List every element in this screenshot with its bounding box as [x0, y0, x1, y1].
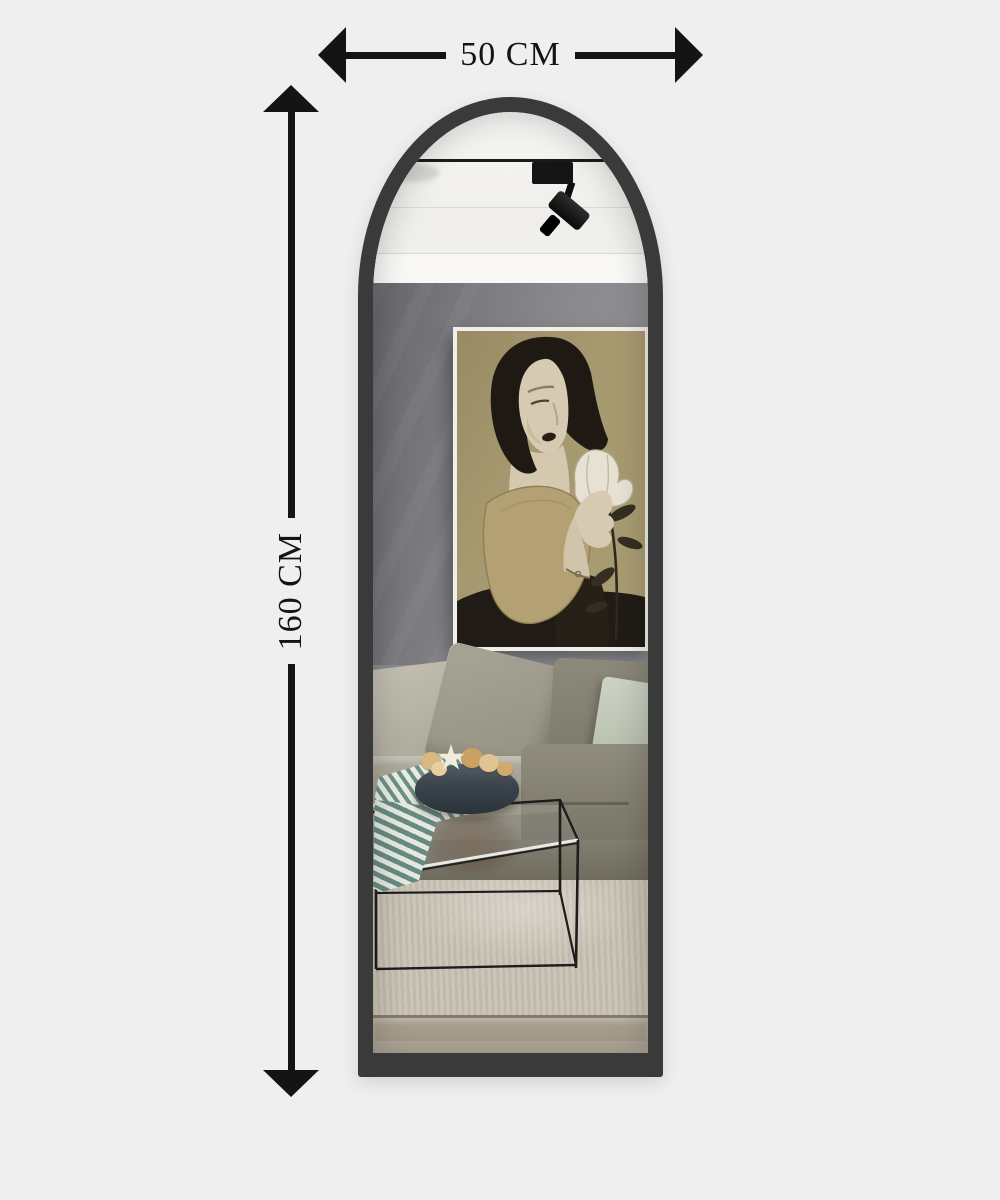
dimension-line [575, 52, 675, 59]
arrow-up-icon [263, 85, 319, 112]
arched-mirror-frame [358, 97, 663, 1077]
ceiling-panel-line [373, 207, 648, 208]
dimension-line [288, 112, 295, 518]
spotlight-lens [539, 214, 562, 238]
dimension-line [288, 664, 295, 1070]
arrow-left-icon [318, 27, 346, 83]
rug-front-edge [373, 1015, 648, 1044]
width-label: 50 CM [446, 36, 574, 74]
arrow-down-icon [263, 1070, 319, 1097]
height-dimension: 160 CM [263, 85, 319, 1097]
cookie [431, 762, 447, 776]
cookie [479, 754, 499, 772]
framed-artwork [453, 327, 648, 651]
ceiling-cove-band [373, 253, 648, 284]
arrow-right-icon [675, 27, 703, 83]
artwork-illustration [457, 331, 645, 647]
spotlight-mount [532, 162, 573, 184]
width-dimension: 50 CM [318, 27, 703, 83]
mirror-reflection [373, 112, 648, 1053]
light-track [373, 159, 648, 162]
floor-strip [373, 1041, 648, 1053]
height-label: 160 CM [272, 518, 310, 664]
dimension-line [346, 52, 446, 59]
ceiling-light-glow [391, 164, 439, 182]
ceiling [373, 112, 648, 283]
cookie [497, 762, 513, 776]
